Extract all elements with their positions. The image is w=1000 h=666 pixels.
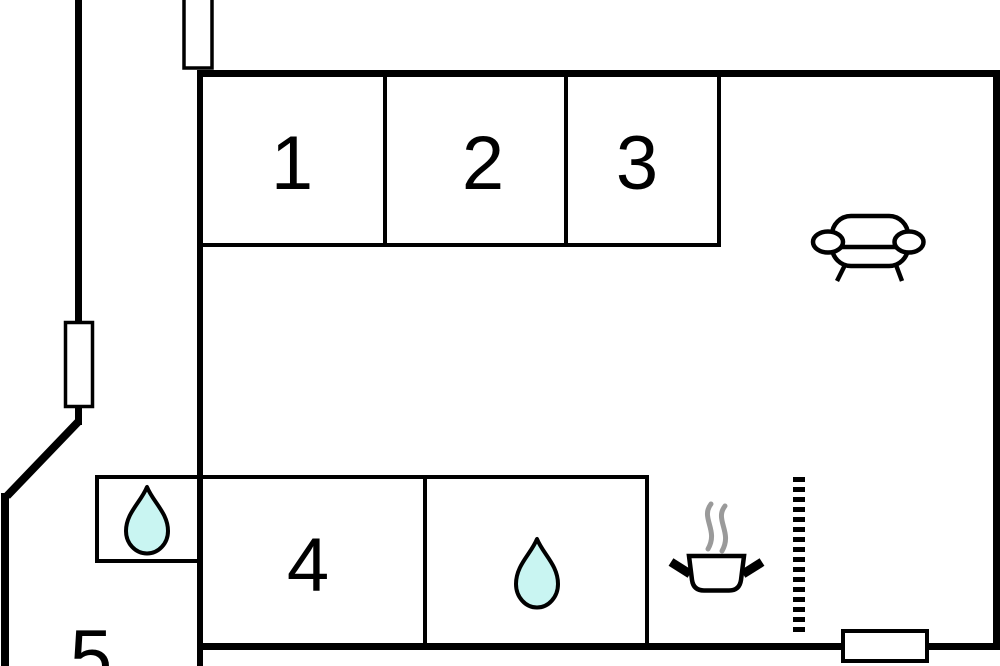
walls [1,0,1000,666]
floor-plan-canvas [0,0,1000,666]
water-drop-icon [516,539,558,608]
wall-divider-room2-room3 [564,74,568,245]
water-drop-icon [126,487,168,554]
wall-annex-lower [1,493,9,666]
floor-plan: 1 2 3 4 5 [0,0,1000,666]
wall-small-bath-left [95,475,99,563]
wall-right [993,70,1000,650]
wall-divider-room1-room2 [383,74,387,245]
wall-left-main [197,70,203,666]
wall-room3-right [717,74,721,245]
window-top-symbol [184,0,212,68]
window-left-symbol [66,323,93,407]
room-label-2: 2 [462,126,504,202]
wall-small-bath-bottom [95,559,201,563]
steam-icon [707,504,725,551]
room-label-1: 1 [271,126,313,202]
cooking-pot-icon [671,556,762,591]
wall-annex-upper [75,0,82,324]
wall-annex-diagonal [7,422,78,496]
steam-wisp-right [721,506,725,551]
room-label-5: 5 [70,620,112,666]
wall-rooms-bottom [197,243,721,247]
wall-bath-right [645,475,649,645]
wall-divider-room4-bath [423,475,427,645]
sofa-leg-left [837,265,845,281]
pot-body [689,556,744,591]
sofa-leg-right [896,265,902,281]
wall-top [197,70,1000,77]
pot-handle-left [671,562,690,574]
sofa-armrest-left [813,232,843,253]
wall-lower-row-top [95,475,648,479]
window-bottom-symbol [843,631,927,661]
sofa-icon [813,216,924,281]
room-label-4: 4 [287,528,329,604]
room-label-3: 3 [616,126,658,202]
pot-handle-right [743,562,762,574]
steam-wisp-left [707,504,711,549]
sofa-armrest-right [895,232,924,253]
